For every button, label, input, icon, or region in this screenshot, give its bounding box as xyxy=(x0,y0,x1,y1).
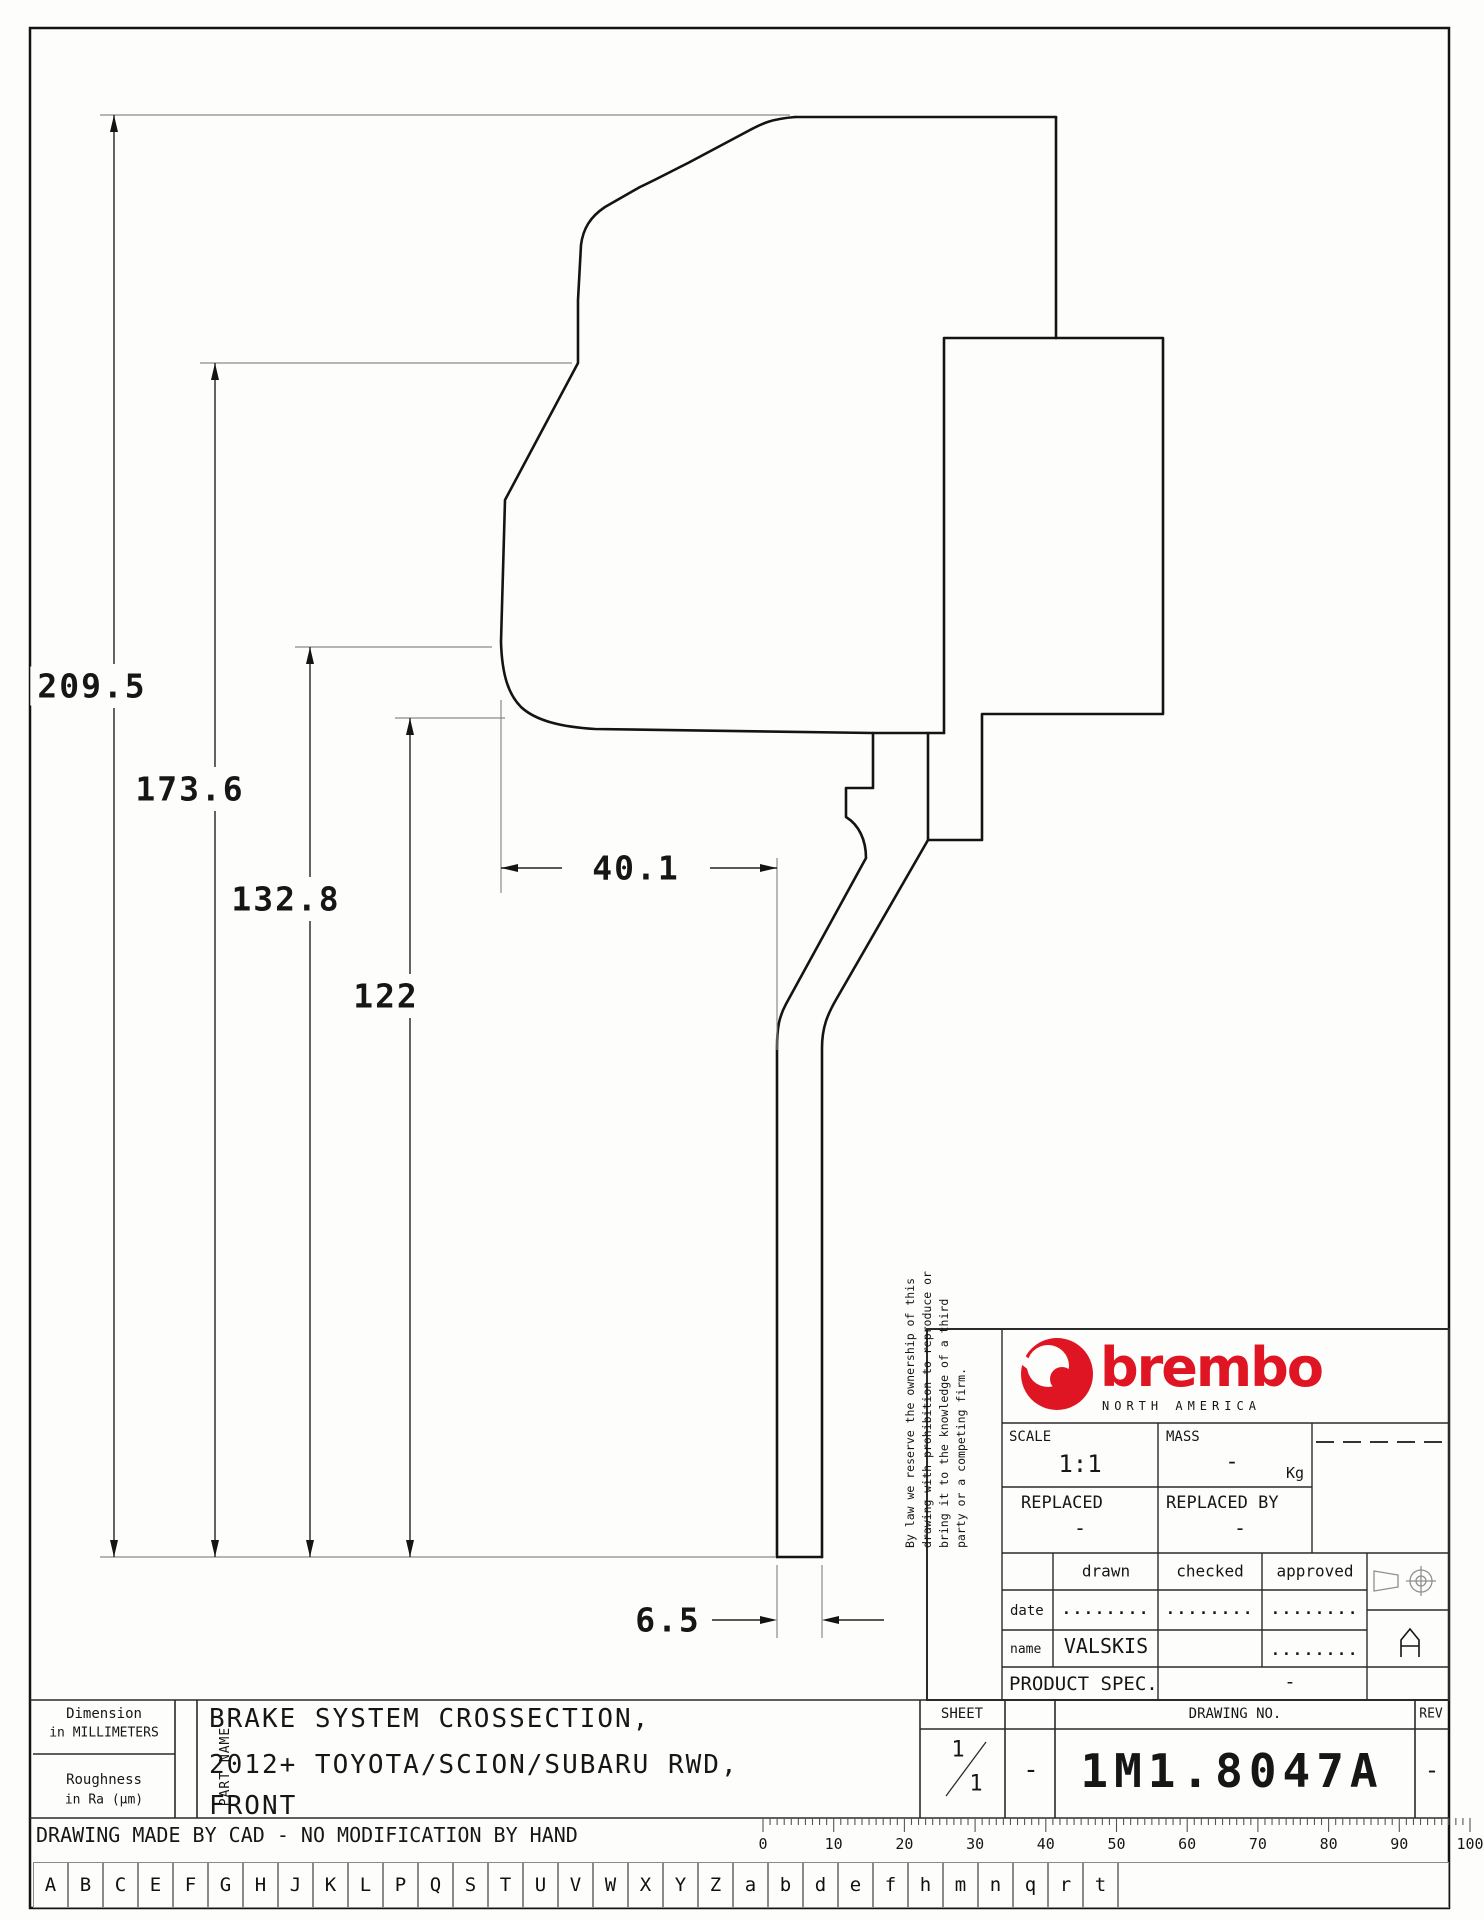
projection-symbol-icon xyxy=(1374,1566,1436,1596)
ruler-label: 80 xyxy=(1320,1835,1338,1853)
date-drawn-value: ........ xyxy=(1062,1600,1150,1618)
signoff-col-checked: checked xyxy=(1176,1562,1243,1581)
zone-letter-cell: T xyxy=(488,1862,523,1908)
zone-letter-cell: L xyxy=(348,1862,383,1908)
dim-label-inner-height: 122 xyxy=(346,977,426,1016)
signoff-col-approved: approved xyxy=(1276,1562,1353,1581)
ruler-label: 50 xyxy=(1107,1835,1125,1853)
zone-letter-cell: A xyxy=(33,1862,68,1908)
replaced-label: REPLACED xyxy=(1021,1493,1103,1513)
zone-letter-cell: Z xyxy=(698,1862,733,1908)
dim-label-hat-to-mid: 173.6 xyxy=(128,770,251,809)
roughness-note-line2: in Ra (µm) xyxy=(65,1793,143,1808)
mass-label: MASS xyxy=(1166,1429,1200,1445)
name-approved-value: ........ xyxy=(1271,1641,1359,1659)
zone-letter-cell: d xyxy=(803,1862,838,1908)
zone-letter-cell: Y xyxy=(663,1862,698,1908)
zone-letter-cell: n xyxy=(978,1862,1013,1908)
scale-label: SCALE xyxy=(1009,1429,1051,1445)
zone-letter-cell: e xyxy=(838,1862,873,1908)
zone-letter-cell: b xyxy=(768,1862,803,1908)
ruler-label: 0 xyxy=(758,1835,767,1853)
disclaimer-line: bring it to the knowledge of a third xyxy=(936,1468,953,1548)
zone-letter-cell: S xyxy=(453,1862,488,1908)
sheet-border xyxy=(30,28,1449,1908)
zone-letter-cell: P xyxy=(383,1862,418,1908)
sheet-numerator: 1 xyxy=(951,1738,964,1763)
date-checked-value: ........ xyxy=(1166,1600,1254,1618)
replaced-by-value: - xyxy=(1234,1516,1246,1540)
zone-letter-cell: C xyxy=(103,1862,138,1908)
dim-label-vane-thickness: 6.5 xyxy=(628,1601,708,1640)
brembo-region: NORTH AMERICA xyxy=(1102,1399,1261,1413)
legal-disclaimer: By law we reserve the ownership of this … xyxy=(902,1468,970,1548)
drawing-no-label: DRAWING NO. xyxy=(1189,1706,1282,1722)
date-row-label: date xyxy=(1010,1603,1044,1619)
zone-letter-cell: r xyxy=(1048,1862,1083,1908)
roughness-note-line1: Roughness xyxy=(66,1772,142,1788)
zone-letter-cell: H xyxy=(243,1862,278,1908)
hat-profile xyxy=(501,117,944,733)
zone-letter-cell: f xyxy=(873,1862,908,1908)
zone-letter-cell: V xyxy=(558,1862,593,1908)
rev-label: REV xyxy=(1419,1707,1442,1722)
mass-unit: Kg xyxy=(1286,1464,1304,1482)
drawing-canvas xyxy=(0,0,1484,1920)
dim-label-hat-depth: 40.1 xyxy=(585,849,686,888)
dim-label-mid-height: 132.8 xyxy=(224,880,347,919)
ruler-label: 60 xyxy=(1178,1835,1196,1853)
part-name-line1: BRAKE SYSTEM CROSSECTION, xyxy=(209,1704,650,1734)
replaced-value: - xyxy=(1074,1516,1086,1540)
zone-letter-cell: m xyxy=(943,1862,978,1908)
brembo-wordmark: brembo xyxy=(1100,1341,1322,1395)
ruler-label: 90 xyxy=(1390,1835,1408,1853)
disclaimer-line: drawing with prohibition to reproduce or xyxy=(919,1468,936,1548)
product-spec-label: PRODUCT SPEC. xyxy=(1009,1673,1158,1695)
ruler-label: 20 xyxy=(895,1835,913,1853)
name-row-label: name xyxy=(1010,1642,1041,1657)
signoff-col-drawn: drawn xyxy=(1082,1562,1130,1581)
sheet-denominator: 1 xyxy=(969,1772,982,1797)
product-spec-value: - xyxy=(1284,1671,1295,1693)
dim-label-total-height: 209.5 xyxy=(30,667,153,706)
zone-letter-cell: W xyxy=(593,1862,628,1908)
dimension-arrowheads xyxy=(110,115,839,1624)
cad-drawing-sheet: { "dimensions": { "total_height": "209.5… xyxy=(0,0,1484,1920)
zone-letter-cell: a xyxy=(733,1862,768,1908)
extension-lines xyxy=(100,115,822,1638)
zone-letter-cell: t xyxy=(1083,1862,1118,1908)
friction-ring-outline xyxy=(928,338,1163,840)
part-name-line2: 2012+ TOYOTA/SCION/SUBARU RWD, xyxy=(209,1750,739,1780)
zone-letter-cell: J xyxy=(278,1862,313,1908)
zone-letter-cell: B xyxy=(68,1862,103,1908)
ruler-label: 40 xyxy=(1037,1835,1055,1853)
zone-letter-cell: U xyxy=(523,1862,558,1908)
mass-value: - xyxy=(1225,1450,1238,1475)
zone-letter-cell: F xyxy=(173,1862,208,1908)
ruler-label: 100 xyxy=(1456,1835,1483,1853)
zone-letter-cell: h xyxy=(908,1862,943,1908)
drawing-no-value: 1M1.8047A xyxy=(1080,1744,1383,1798)
zone-letter-empty-cell xyxy=(1118,1862,1449,1908)
units-note-line1: Dimension xyxy=(66,1706,142,1722)
revision-a-symbol xyxy=(1401,1629,1419,1657)
cad-note: DRAWING MADE BY CAD - NO MODIFICATION BY… xyxy=(36,1823,578,1847)
ruler-label: 10 xyxy=(825,1835,843,1853)
zone-letter-cell: X xyxy=(628,1862,663,1908)
disclaimer-line: By law we reserve the ownership of this xyxy=(902,1468,919,1548)
zone-letter-cell: E xyxy=(138,1862,173,1908)
ruler-ticks xyxy=(763,1818,1470,1832)
ruler-label: 70 xyxy=(1249,1835,1267,1853)
disclaimer-line: party or a competing firm. xyxy=(953,1468,970,1548)
sheet-dash: - xyxy=(1023,1755,1039,1785)
units-note-line2: in MILLIMETERS xyxy=(49,1726,159,1741)
zone-letter-cell: q xyxy=(1013,1862,1048,1908)
sheet-label: SHEET xyxy=(941,1706,983,1722)
brembo-logo-roundel xyxy=(1014,1338,1093,1410)
ruler-label: 30 xyxy=(966,1835,984,1853)
date-approved-value: ........ xyxy=(1271,1600,1359,1618)
zone-letter-cell: G xyxy=(208,1862,243,1908)
scale-value: 1:1 xyxy=(1058,1450,1101,1478)
rev-value: - xyxy=(1425,1756,1439,1784)
name-drawn-value: VALSKIS xyxy=(1064,1634,1148,1658)
neck-left-edge xyxy=(777,733,873,1557)
zone-letter-cell: Q xyxy=(418,1862,453,1908)
zone-letter-cell: K xyxy=(313,1862,348,1908)
replaced-by-label: REPLACED BY xyxy=(1166,1493,1279,1513)
part-name-line3: FRONT xyxy=(209,1791,297,1821)
